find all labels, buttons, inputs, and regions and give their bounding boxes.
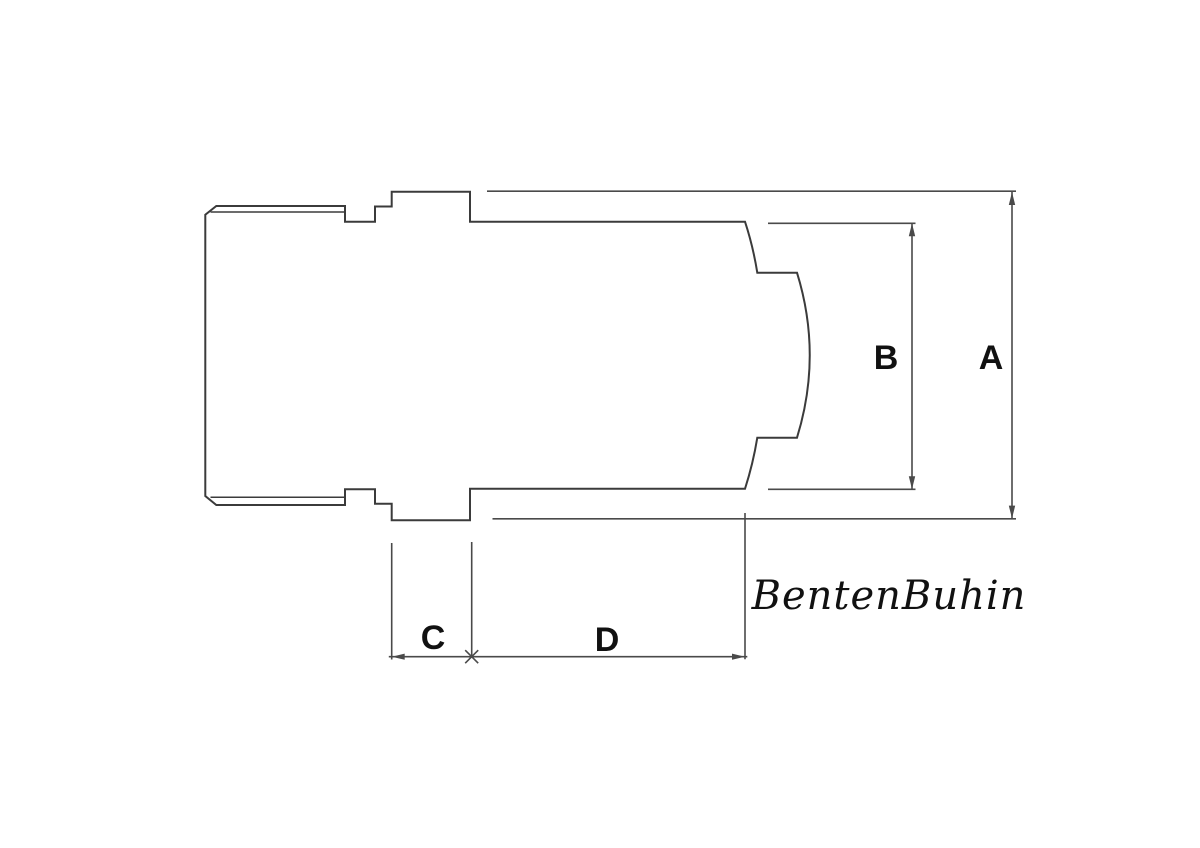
technical-drawing-page: A B C D BentenBuhin [0, 0, 1200, 848]
brand-signature: BentenBuhin [752, 576, 1027, 616]
technical-drawing-canvas [0, 0, 1200, 848]
arrowhead-a-bottom [1009, 506, 1015, 519]
arrowhead-b-top [909, 223, 915, 236]
arrowhead-a-top [1009, 192, 1015, 205]
dim-label-a: A [979, 341, 1004, 375]
arrowhead-b-bottom [909, 476, 915, 489]
dim-label-d: D [595, 623, 620, 657]
dim-label-c: C [421, 621, 446, 655]
part-outline [205, 192, 809, 521]
dim-label-b: B [874, 341, 899, 375]
arrowhead-d-right [732, 654, 745, 660]
arrowhead-c-left [392, 654, 405, 660]
